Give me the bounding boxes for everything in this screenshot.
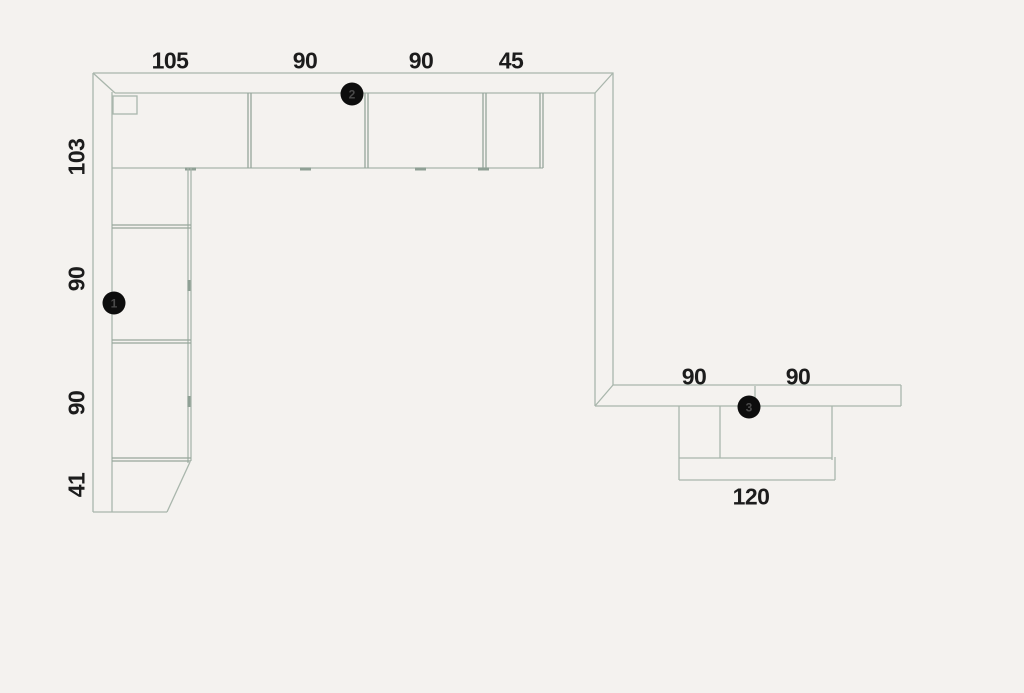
wall-outline xyxy=(93,73,613,512)
hotspot-marker-2[interactable]: 2 xyxy=(341,83,364,106)
dimension-label-left-2: 90 xyxy=(66,267,89,292)
hotspot-marker-1[interactable]: 1 xyxy=(103,292,126,315)
dimension-label-left-3: 90 xyxy=(66,391,89,416)
plan-line-drawing xyxy=(0,0,1024,693)
dimension-label-left-1: 103 xyxy=(66,139,89,176)
dimension-label-counter-1: 90 xyxy=(682,366,707,389)
dimension-label-island: 120 xyxy=(733,486,770,509)
dimension-label-left-4: 41 xyxy=(66,473,89,498)
left-cabinet-run xyxy=(93,168,191,512)
dimension-label-top-2: 90 xyxy=(293,50,318,73)
hotspot-marker-3[interactable]: 3 xyxy=(738,396,761,419)
island-unit xyxy=(679,406,835,480)
dimension-label-top-4: 45 xyxy=(499,50,524,73)
dimension-label-top-3: 90 xyxy=(409,50,434,73)
floor-plan-canvas: 105 90 90 45 103 90 90 41 90 90 120 1 2 … xyxy=(0,0,1024,693)
dimension-label-top-1: 105 xyxy=(152,50,189,73)
dimension-label-counter-2: 90 xyxy=(786,366,811,389)
top-cabinet-run xyxy=(112,92,543,512)
corner-post xyxy=(113,96,137,114)
